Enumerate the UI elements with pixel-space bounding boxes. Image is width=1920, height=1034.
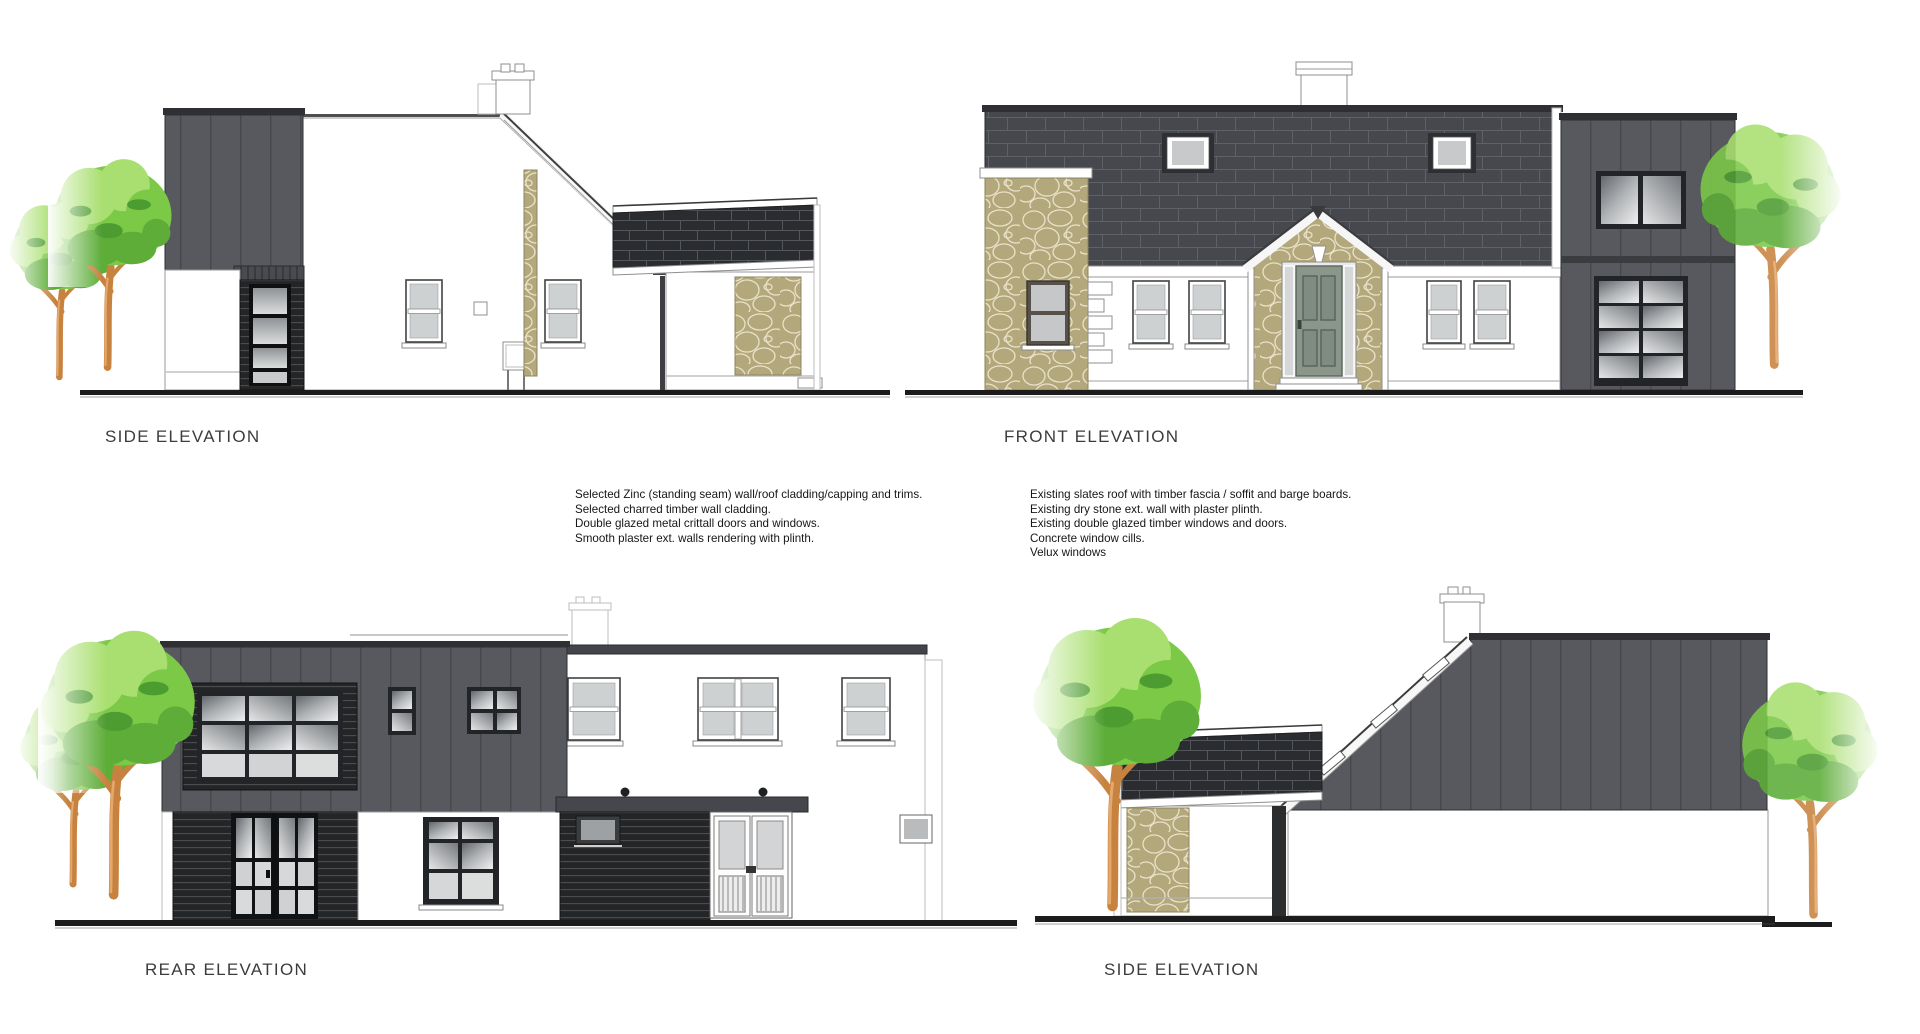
roof-outline xyxy=(350,634,568,636)
corner-board xyxy=(814,205,820,390)
crittall-window xyxy=(419,817,503,910)
tree xyxy=(48,159,172,367)
render-wall xyxy=(1288,810,1768,916)
ground-line xyxy=(55,920,1017,926)
door-handle xyxy=(746,866,756,873)
stone-pier xyxy=(1127,808,1189,912)
note-line: Existing double glazed timber windows an… xyxy=(1030,517,1430,532)
label-side-elevation-2: SIDE ELEVATION xyxy=(1104,960,1260,980)
entrance-door xyxy=(240,280,304,390)
note-line: Concrete window cills. xyxy=(1030,532,1430,547)
return-wall xyxy=(925,660,942,922)
note-line: Double glazed metal crittall doors and w… xyxy=(575,517,975,532)
wing-fascia xyxy=(980,168,1092,178)
crittall-window-pair xyxy=(1596,171,1686,229)
door-handle xyxy=(266,870,270,878)
sidelight xyxy=(1284,266,1294,376)
zinc-roof xyxy=(1288,639,1767,810)
porch-corner-board xyxy=(1248,268,1254,390)
gable-wall xyxy=(303,118,666,390)
small-window xyxy=(574,816,622,846)
finial xyxy=(621,788,630,797)
porch-step xyxy=(1280,378,1358,384)
front-elevation xyxy=(905,62,1843,398)
zinc-clad-block xyxy=(163,108,305,270)
crittall-window-large xyxy=(1594,276,1688,386)
parapet-line xyxy=(303,114,500,117)
drawing-sheet: SIDE ELEVATION FRONT ELEVATION REAR ELEV… xyxy=(0,0,1920,1034)
side-elevation-top-left xyxy=(8,64,890,398)
porch-corner-board xyxy=(1382,268,1388,390)
sash-window xyxy=(541,280,585,348)
sash-window xyxy=(1470,281,1514,349)
stone-chimney-strip xyxy=(524,170,537,376)
ridge-capping xyxy=(982,105,1563,112)
corner-strip xyxy=(162,812,173,922)
note-line: Smooth plaster ext. walls rendering with… xyxy=(575,532,975,547)
crittall-glazed-doors xyxy=(231,813,318,919)
recessed-corner xyxy=(1272,806,1286,916)
crittall-window-small xyxy=(388,687,416,735)
finial xyxy=(759,788,768,797)
ground-line xyxy=(1035,916,1775,922)
crittall-window-2x2 xyxy=(467,687,521,734)
sash-window-double xyxy=(693,678,782,746)
side-elevation-bottom-right xyxy=(1030,587,1880,927)
ground-line xyxy=(905,390,1803,395)
note-line: Velux windows xyxy=(1030,546,1430,561)
sash-window xyxy=(837,678,895,746)
chimney xyxy=(478,64,534,114)
sash-window xyxy=(1129,281,1173,349)
note-line: Existing dry stone ext. wall with plaste… xyxy=(1030,503,1430,518)
sidelight xyxy=(1344,266,1354,376)
sash-window xyxy=(402,280,446,348)
velux-rooflight xyxy=(1428,133,1476,173)
label-rear-elevation: REAR ELEVATION xyxy=(145,960,308,980)
barge-board xyxy=(1552,108,1561,268)
small-window xyxy=(900,815,932,843)
french-doors xyxy=(710,812,792,918)
porch-step xyxy=(1276,384,1362,390)
ridge-capping xyxy=(1469,633,1770,640)
chimney-outline xyxy=(569,597,611,647)
front-door xyxy=(1296,266,1342,376)
ground-line xyxy=(80,390,890,395)
downpipe xyxy=(660,276,665,390)
sash-window xyxy=(1185,281,1229,349)
velux-rooflight xyxy=(1162,133,1214,173)
label-front-elevation: FRONT ELEVATION xyxy=(1004,427,1179,447)
door-handle xyxy=(1298,320,1302,329)
charred-window-surround xyxy=(183,683,357,790)
note-line: Existing slates roof with timber fascia … xyxy=(1030,488,1430,503)
sash-window xyxy=(563,678,623,746)
notes-existing-materials: Existing slates roof with timber fascia … xyxy=(1030,488,1430,561)
label-side-elevation-1: SIDE ELEVATION xyxy=(105,427,261,447)
note-line: Selected Zinc (standing seam) wall/roof … xyxy=(575,488,975,503)
quoins xyxy=(1088,282,1112,363)
rear-elevation xyxy=(18,597,1017,929)
notes-proposed-materials: Selected Zinc (standing seam) wall/roof … xyxy=(575,488,975,546)
fascia-band xyxy=(567,645,927,654)
door-fascia xyxy=(234,266,304,280)
slate-roof xyxy=(613,205,817,268)
stone-pier xyxy=(735,277,801,375)
timber-window xyxy=(1022,281,1074,350)
sash-window xyxy=(1423,281,1465,349)
zinc-extension xyxy=(1552,108,1737,390)
vent xyxy=(474,302,487,315)
floor-band xyxy=(1561,256,1735,263)
note-line: Selected charred timber wall cladding. xyxy=(575,503,975,518)
